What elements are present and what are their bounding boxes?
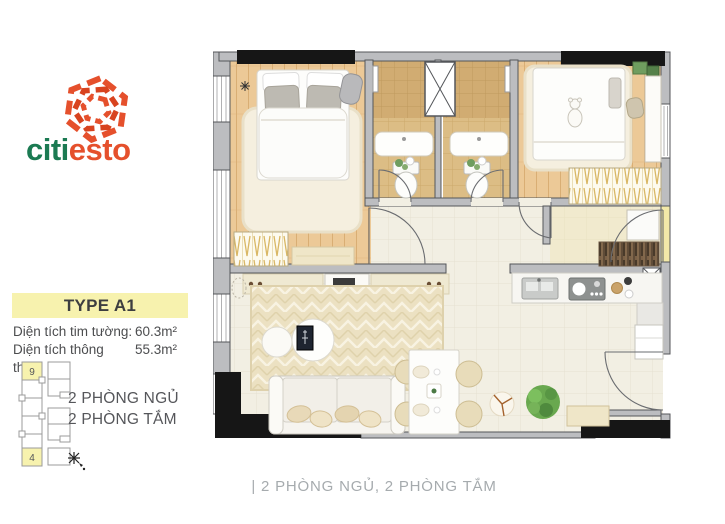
master-dresser (292, 247, 354, 265)
keyplan-unit-top: 9 (29, 367, 35, 378)
toilet (464, 157, 490, 198)
floor-plan (213, 42, 671, 462)
plan-caption: | 2 PHÒNG NGỦ, 2 PHÒNG TẮM (214, 478, 534, 495)
entry-cabinet (627, 210, 659, 240)
shoe-rack (599, 242, 659, 266)
cutting-board (612, 283, 623, 294)
brand-wordmark: citiesto (26, 132, 131, 168)
coffee-table-small (262, 327, 292, 357)
service-shaft (425, 62, 455, 116)
pot (624, 277, 632, 285)
bedroom2-wardrobe (569, 168, 661, 204)
dining-chair (456, 361, 482, 387)
bowl (625, 290, 633, 298)
fridge (635, 325, 663, 359)
shower-bar (373, 66, 378, 92)
brand-name-left: citi (26, 132, 69, 167)
dining-chair (456, 401, 482, 427)
master-wardrobe (234, 232, 288, 266)
type-label-banner: TYPE A1 (12, 293, 188, 318)
decor-tray (297, 326, 313, 350)
kitchen-sink (522, 278, 558, 299)
vanity (375, 132, 433, 156)
vanity (450, 132, 508, 156)
sofa (269, 376, 405, 434)
rooms-line-bedrooms: 2 PHÒNG NGỦ (68, 388, 179, 409)
rooms-summary: 2 PHÒNG NGỦ 2 PHÒNG TẮM (68, 388, 179, 430)
hall-cabinet (567, 406, 609, 426)
counter-return (637, 303, 663, 325)
desk (645, 76, 661, 162)
plant (633, 62, 647, 74)
brand-name-right: esto (69, 132, 131, 167)
keyplan-unit-bottom: 4 (29, 453, 35, 464)
area-value: 60.3m² (135, 323, 177, 341)
dining-table (409, 350, 459, 434)
area-label: Diện tích tim tường: (13, 323, 135, 341)
rooms-line-bathrooms: 2 PHÒNG TẮM (68, 409, 179, 430)
floor-plan-page: citiesto TYPE A1 Diện tích tim tường: 60… (0, 0, 725, 524)
area-row-gross: Diện tích tim tường: 60.3m² (13, 323, 203, 341)
cooktop (569, 278, 605, 300)
compass-icon (64, 448, 88, 472)
toilet (393, 157, 419, 198)
type-label: TYPE A1 (64, 296, 136, 316)
potted-plant (526, 385, 560, 419)
shower-bar (505, 66, 510, 92)
master-bed (257, 70, 349, 180)
entry-door-strip (661, 206, 670, 262)
ceiling-fan-icon (240, 81, 250, 91)
teddy-bear (568, 98, 582, 127)
area-value: 55.3m² (135, 341, 177, 377)
straw-fan (490, 392, 514, 416)
